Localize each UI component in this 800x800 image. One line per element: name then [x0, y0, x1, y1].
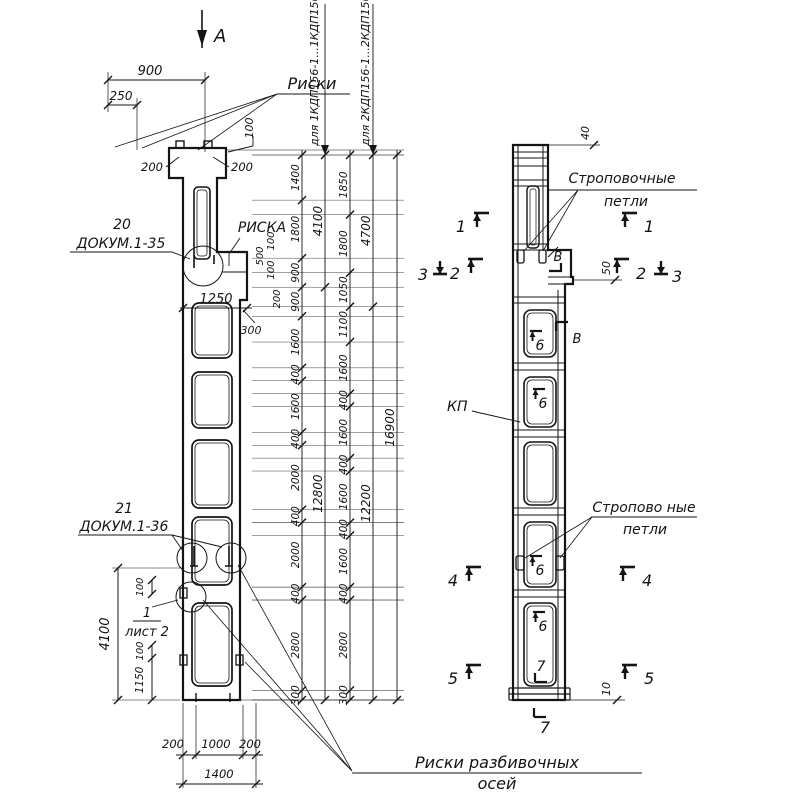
dim-chain-label: 2800 — [338, 632, 350, 659]
section-6-mark: 6 — [539, 396, 548, 412]
dim-chain-label: 400 — [338, 583, 350, 603]
front-view-dimensions: 900 250 Риски 200 200 100 РИСКА 20 ДОКУМ… — [70, 64, 642, 793]
dim-chain-label: 1600 — [338, 354, 350, 381]
dim-chain-label: 400 — [338, 519, 350, 539]
dim-10: 10 — [600, 682, 613, 696]
section-4-right: 4 — [642, 571, 652, 590]
section-2-left: 2 — [450, 264, 460, 283]
dim-200-corbel: 200 — [272, 289, 283, 308]
dim-chain-label: 2000 — [290, 464, 302, 491]
section-2-right: 2 — [636, 264, 646, 283]
side-view: 40 50 10 В В КП Строповочные петли Строп… — [418, 126, 697, 737]
dim-100a: 100 — [266, 231, 277, 250]
section-7-mark: 7 — [540, 718, 551, 737]
dim-chain-label: 400 — [338, 390, 350, 410]
sheet-ref-number: 1 — [143, 606, 151, 621]
series2-label: для 2КДП156-1...2КДП156-7 — [359, 0, 372, 147]
dim-40: 40 — [579, 126, 592, 140]
detail-21-doc: ДОКУМ.1-36 — [79, 519, 169, 535]
dim-200-right: 200 — [231, 160, 253, 174]
axes-note-line1: Риски разбивочных — [415, 753, 579, 772]
dim-chain-label: 1100 — [338, 311, 350, 338]
section-6-mark: 6 — [536, 563, 545, 579]
front-openings — [192, 303, 232, 686]
dim-chain-label: 900 — [290, 291, 302, 311]
front-view: А — [169, 10, 247, 702]
section-4-left: 4 — [448, 571, 458, 590]
section-1-right: 1 — [644, 217, 654, 236]
dim-250: 250 — [110, 89, 133, 103]
sheet-ref-label: лист 2 — [124, 625, 169, 640]
detail-circle-21b — [216, 543, 246, 573]
detail-20-number: 20 — [113, 217, 131, 233]
dim-300: 300 — [241, 324, 262, 337]
dim-100b: 100 — [266, 260, 277, 279]
dim-chain-label: 900 — [290, 262, 302, 282]
dim-900: 900 — [138, 64, 163, 79]
dim-chain-label: 400 — [290, 428, 302, 448]
section-marks: 1 2 3 1 2 3 4 4 5 5 6 6 6 6 — [418, 213, 682, 737]
detail-21-number: 21 — [115, 501, 133, 517]
sling-note-bottom-line1: Стропово ные — [592, 500, 695, 516]
dim-chain-label: 400 — [338, 454, 350, 474]
dim-200-left: 200 — [141, 160, 163, 174]
dim-chain-label: 300 — [338, 685, 350, 705]
dim-chain-label: 1050 — [338, 276, 350, 303]
dim-chain-label: 400 — [290, 583, 302, 603]
view-b-label: В — [573, 332, 582, 347]
kp-label: КП — [447, 399, 468, 415]
section-3-right: 3 — [672, 267, 682, 286]
dim-chain-label: 1600 — [338, 419, 350, 446]
dim-chain-label: 16900 — [383, 408, 397, 447]
dim-1000: 1000 — [201, 737, 230, 751]
dim-chain-label: 1400 — [290, 164, 302, 191]
dim-chain-label: 1800 — [290, 215, 302, 242]
section-6-mark: 6 — [536, 338, 545, 354]
dim-1400: 1400 — [204, 767, 233, 781]
dim-chain-label: 12800 — [311, 474, 325, 513]
dim-chain-label: 400 — [290, 364, 302, 384]
section-6-mark: 6 — [539, 619, 548, 635]
dim-100-top: 100 — [243, 118, 256, 139]
dim-chain-label: 4100 — [311, 205, 325, 236]
series1-label: для 1КДП156-1...1КДП156-4 — [308, 0, 321, 147]
section-7-mark: 7 — [537, 659, 546, 675]
section-5-left: 5 — [448, 669, 458, 688]
dim-chain-label: 2800 — [290, 632, 302, 659]
sling-note-bottom-line2: петли — [623, 522, 667, 538]
dim-500: 500 — [255, 246, 266, 265]
dim-200-br: 200 — [239, 737, 261, 751]
sling-note-top-line2: петли — [604, 194, 648, 210]
sling-note-top-line1: Строповочные — [568, 171, 675, 187]
dim-chain-label: 2000 — [290, 541, 302, 568]
dim-chain-label: 1850 — [338, 171, 350, 198]
axes-note-line2: осей — [478, 774, 517, 793]
dim-chain-label: 1600 — [338, 483, 350, 510]
dim-4100-left: 4100 — [98, 617, 113, 650]
dim-chain-label: 1600 — [338, 548, 350, 575]
dim-chain-label: 1800 — [338, 230, 350, 257]
section-5-right: 5 — [644, 669, 654, 688]
dim-chain-label: 1600 — [290, 328, 302, 355]
detail-circle-20 — [183, 246, 223, 286]
column-outline — [169, 148, 247, 700]
dim-chain-label: 12200 — [359, 484, 373, 523]
riska-note: РИСКА — [238, 220, 286, 236]
view-b-label: В — [554, 250, 563, 265]
dim-chain-label: 400 — [290, 506, 302, 526]
dim-chain-label: 4700 — [359, 215, 373, 246]
section-1-left: 1 — [456, 217, 466, 236]
dim-1250: 1250 — [199, 292, 232, 307]
dim-1150: 1150 — [134, 666, 146, 693]
dim-100-lower: 100 — [135, 641, 146, 660]
view-a-label: А — [213, 26, 226, 47]
riska-marks — [176, 543, 246, 702]
dim-100-upper: 100 — [135, 577, 146, 596]
drawing-sheet: 1400180090090016004001600400200040020004… — [0, 0, 800, 800]
view-a-arrow: А — [197, 10, 226, 48]
detail-20-doc: ДОКУМ.1-35 — [76, 236, 166, 252]
dim-200-bl: 200 — [162, 737, 184, 751]
dim-chain-label: 1600 — [290, 393, 302, 420]
section-3-left: 3 — [418, 265, 428, 284]
dim-50: 50 — [600, 261, 613, 275]
drawing-canvas: 1400180090090016004001600400200040020004… — [0, 0, 800, 800]
